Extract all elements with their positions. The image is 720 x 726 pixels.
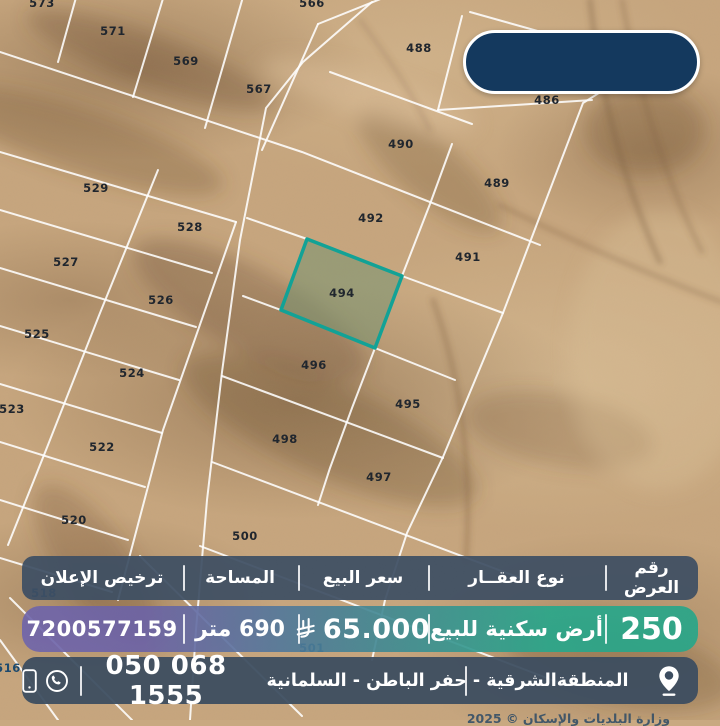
column-divider [428, 614, 430, 644]
value-property-type: أرض سكنية للبيع [428, 606, 605, 652]
header-offer-number: رقم العرض [605, 556, 698, 600]
plot-label-529: 529 [83, 181, 109, 195]
contact-bar: المنطقةالشرقية - حفر الباطن - السلمانية … [22, 657, 698, 704]
value-license: 7200577159 [22, 606, 182, 652]
header-ad-license: ترخيص الإعلان [22, 556, 182, 600]
plot-label-573: 573 [29, 0, 55, 10]
plot-label-495: 495 [395, 397, 421, 411]
advertiser-logo-pill [463, 30, 700, 94]
plot-label-491: 491 [455, 250, 481, 264]
plot-label-494: 494 [329, 286, 355, 300]
contact-address: المنطقةالشرقية - حفر الباطن - السلمانية [255, 657, 640, 704]
plot-label-527: 527 [53, 255, 79, 269]
plot-label-524: 524 [119, 366, 145, 380]
value-sale-price: 65.000 [298, 606, 428, 652]
plot-label-566: 566 [299, 0, 325, 10]
plot-label-486: 486 [534, 93, 560, 107]
plot-label-528: 528 [177, 220, 203, 234]
column-divider [80, 666, 82, 696]
plot-label-525: 525 [24, 327, 50, 341]
column-divider [298, 614, 300, 644]
column-divider [298, 565, 300, 591]
column-divider [428, 565, 430, 591]
plot-label-488: 488 [406, 41, 432, 55]
plot-label-569: 569 [173, 54, 199, 68]
info-table-values: 250 أرض سكنية للبيع 65.000 690 متر 72005… [22, 606, 698, 652]
plot-label-520: 520 [61, 513, 87, 527]
plot-label-490: 490 [388, 137, 414, 151]
value-offer-number: 250 [605, 606, 698, 652]
column-divider [605, 614, 607, 644]
plot-label-567: 567 [246, 82, 272, 96]
header-sale-price: سعر البيع [298, 556, 428, 600]
plot-label-522: 522 [89, 440, 115, 454]
header-area: المساحة [182, 556, 298, 600]
plot-label-489: 489 [484, 176, 510, 190]
mobile-phone-icon [22, 669, 37, 693]
plot-label-526: 526 [148, 293, 174, 307]
column-divider [605, 565, 607, 591]
plot-label-516: 516 [0, 661, 21, 675]
plot-label-492: 492 [358, 211, 384, 225]
plot-label-497: 497 [366, 470, 392, 484]
plot-label-571: 571 [100, 24, 126, 38]
land-listing-ad: { "map": { "plots": [ {"label":"573","x"… [0, 0, 720, 720]
info-table-header: رقم العرض نوع العقــار سعر البيع المساحة… [22, 556, 698, 600]
plot-label-498: 498 [272, 432, 298, 446]
whatsapp-icon [45, 669, 69, 693]
plot-label-500: 500 [232, 529, 258, 543]
value-area: 690 متر [182, 606, 298, 652]
ministry-watermark: وزارة البلديات والإسكان © 2025 [430, 711, 670, 726]
location-cell [640, 657, 698, 704]
contact-phone-cell: 050 068 1555 [22, 657, 255, 704]
header-property-type: نوع العقــار [428, 556, 605, 600]
column-divider [465, 666, 467, 696]
column-divider [183, 614, 185, 644]
price-amount: 65.000 [323, 614, 430, 645]
plot-label-496: 496 [301, 358, 327, 372]
column-divider [183, 565, 185, 591]
plot-label-523: 523 [0, 402, 25, 416]
location-pin-icon [657, 665, 681, 697]
contact-phone-number: 050 068 1555 [77, 651, 255, 711]
